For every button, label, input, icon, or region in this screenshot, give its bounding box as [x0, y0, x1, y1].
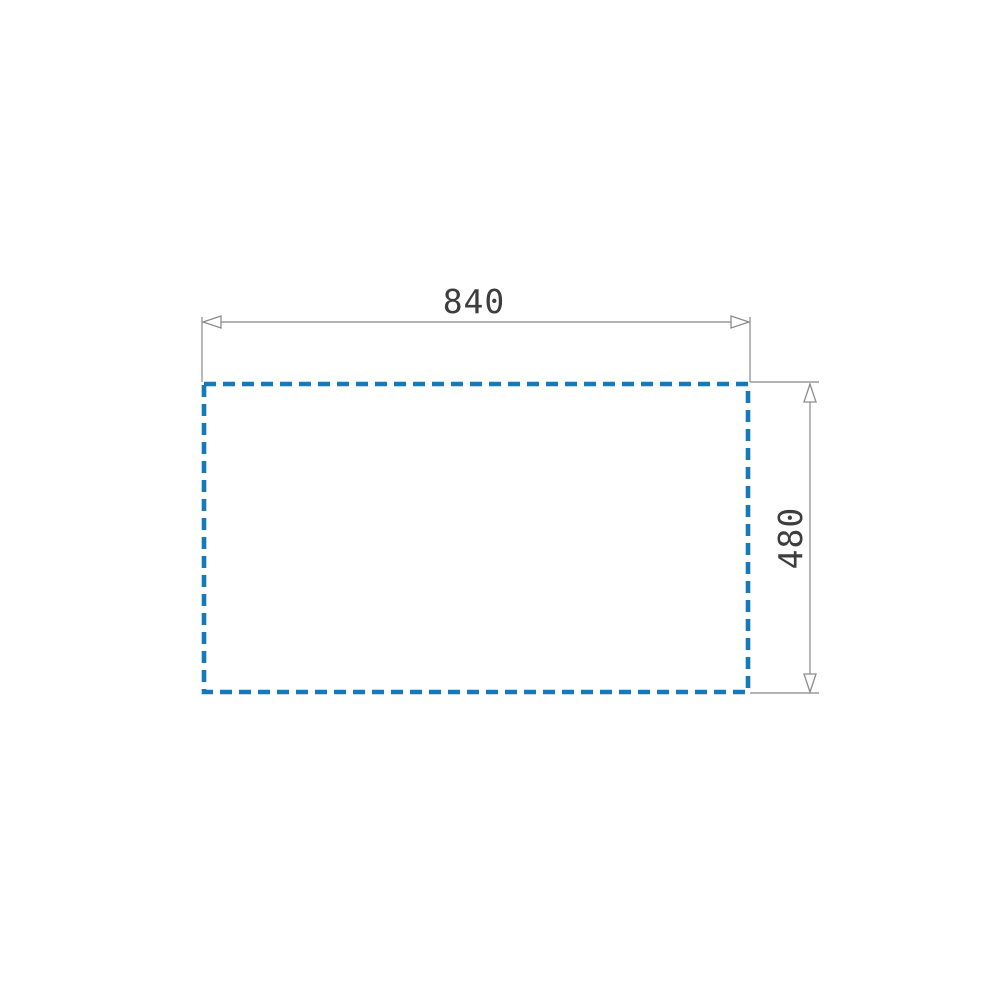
arrow-left-icon	[203, 316, 221, 328]
dimension-diagram: 840 480	[0, 0, 1000, 1000]
drawing-canvas: 840 480	[0, 0, 1000, 1000]
height-dimension-label: 480	[771, 507, 810, 570]
cutout-outline	[204, 384, 748, 692]
arrow-up-icon	[804, 384, 816, 402]
arrow-down-icon	[804, 674, 816, 692]
width-dimension-label: 840	[443, 282, 506, 321]
arrow-right-icon	[731, 316, 749, 328]
